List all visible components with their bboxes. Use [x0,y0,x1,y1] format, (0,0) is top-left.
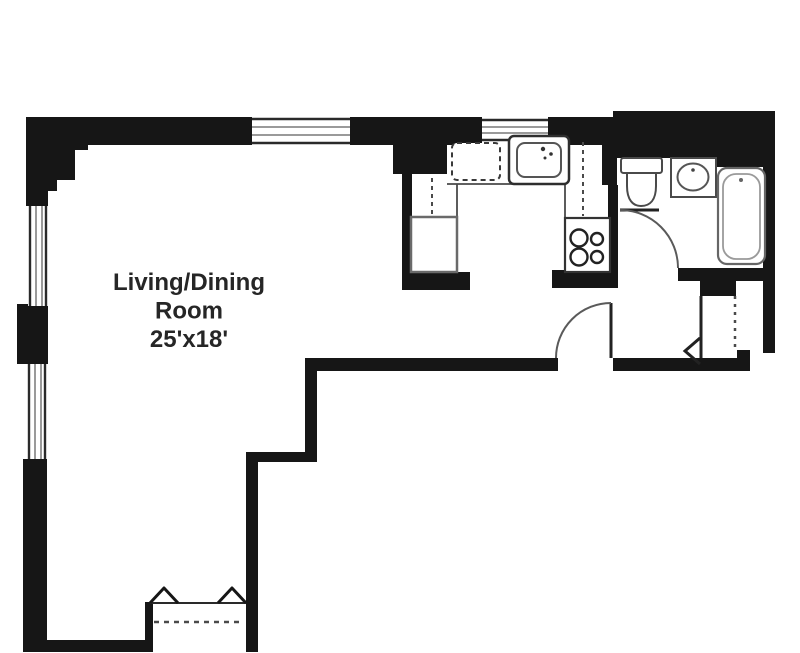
room-label-line1: Living/Dining [113,269,265,296]
floor-plan: Living/Dining Room 25'x18' [0,0,800,653]
window-top-living [252,117,350,145]
toilet [621,158,662,206]
window-left-upper [28,206,48,306]
faucet-dot [549,152,553,156]
kitchen-pier-left [393,145,447,174]
ac-sleeve-left-jamb [145,602,153,652]
drain-dot [691,168,695,172]
ac-louver-right [218,588,246,603]
dishwasher [452,143,500,180]
bathtub [718,168,765,264]
walls [17,111,775,652]
step-wall-vertical-upper [305,358,317,462]
stove [565,218,610,272]
vanity-sink [671,158,716,197]
living-room-south-wall [305,358,558,371]
floor-plan-drawing: Living/Dining Room 25'x18' [0,0,800,653]
foyer-south-wall [613,358,750,371]
refrigerator [411,217,457,272]
foyer-south-wall-step [737,350,750,371]
room-label-line2: Room [155,298,223,325]
faucet-dot [544,157,547,160]
bathroom-south-stub [700,281,736,296]
bottom-wall-left [23,640,152,652]
left-wall-lower [23,459,47,652]
door-living-to-foyer [556,303,611,358]
faucet-dot [541,147,545,151]
kitchen-stub-left [402,272,470,290]
room-label: Living/Dining Room 25'x18' [113,269,265,353]
kitchen-sink [509,136,569,184]
drain-dot [739,178,743,182]
door-bathroom [620,210,678,268]
kitchen-pier-right [602,145,617,185]
radiator-ac-unit [150,588,246,622]
bathroom-south-wall [678,268,775,281]
left-wall-pier [17,304,48,364]
counter-front-edge [447,184,565,218]
top-wall-middle [350,117,482,145]
door-swing-arc [620,210,678,268]
room-label-line3: 25'x18' [150,326,228,353]
foyer [685,296,735,364]
ac-louver-left [150,588,178,603]
window-left-lower [27,364,47,459]
door-swing-arc [556,303,611,358]
corner-column-top-left [26,117,88,206]
step-wall-vertical-lower [246,452,258,652]
